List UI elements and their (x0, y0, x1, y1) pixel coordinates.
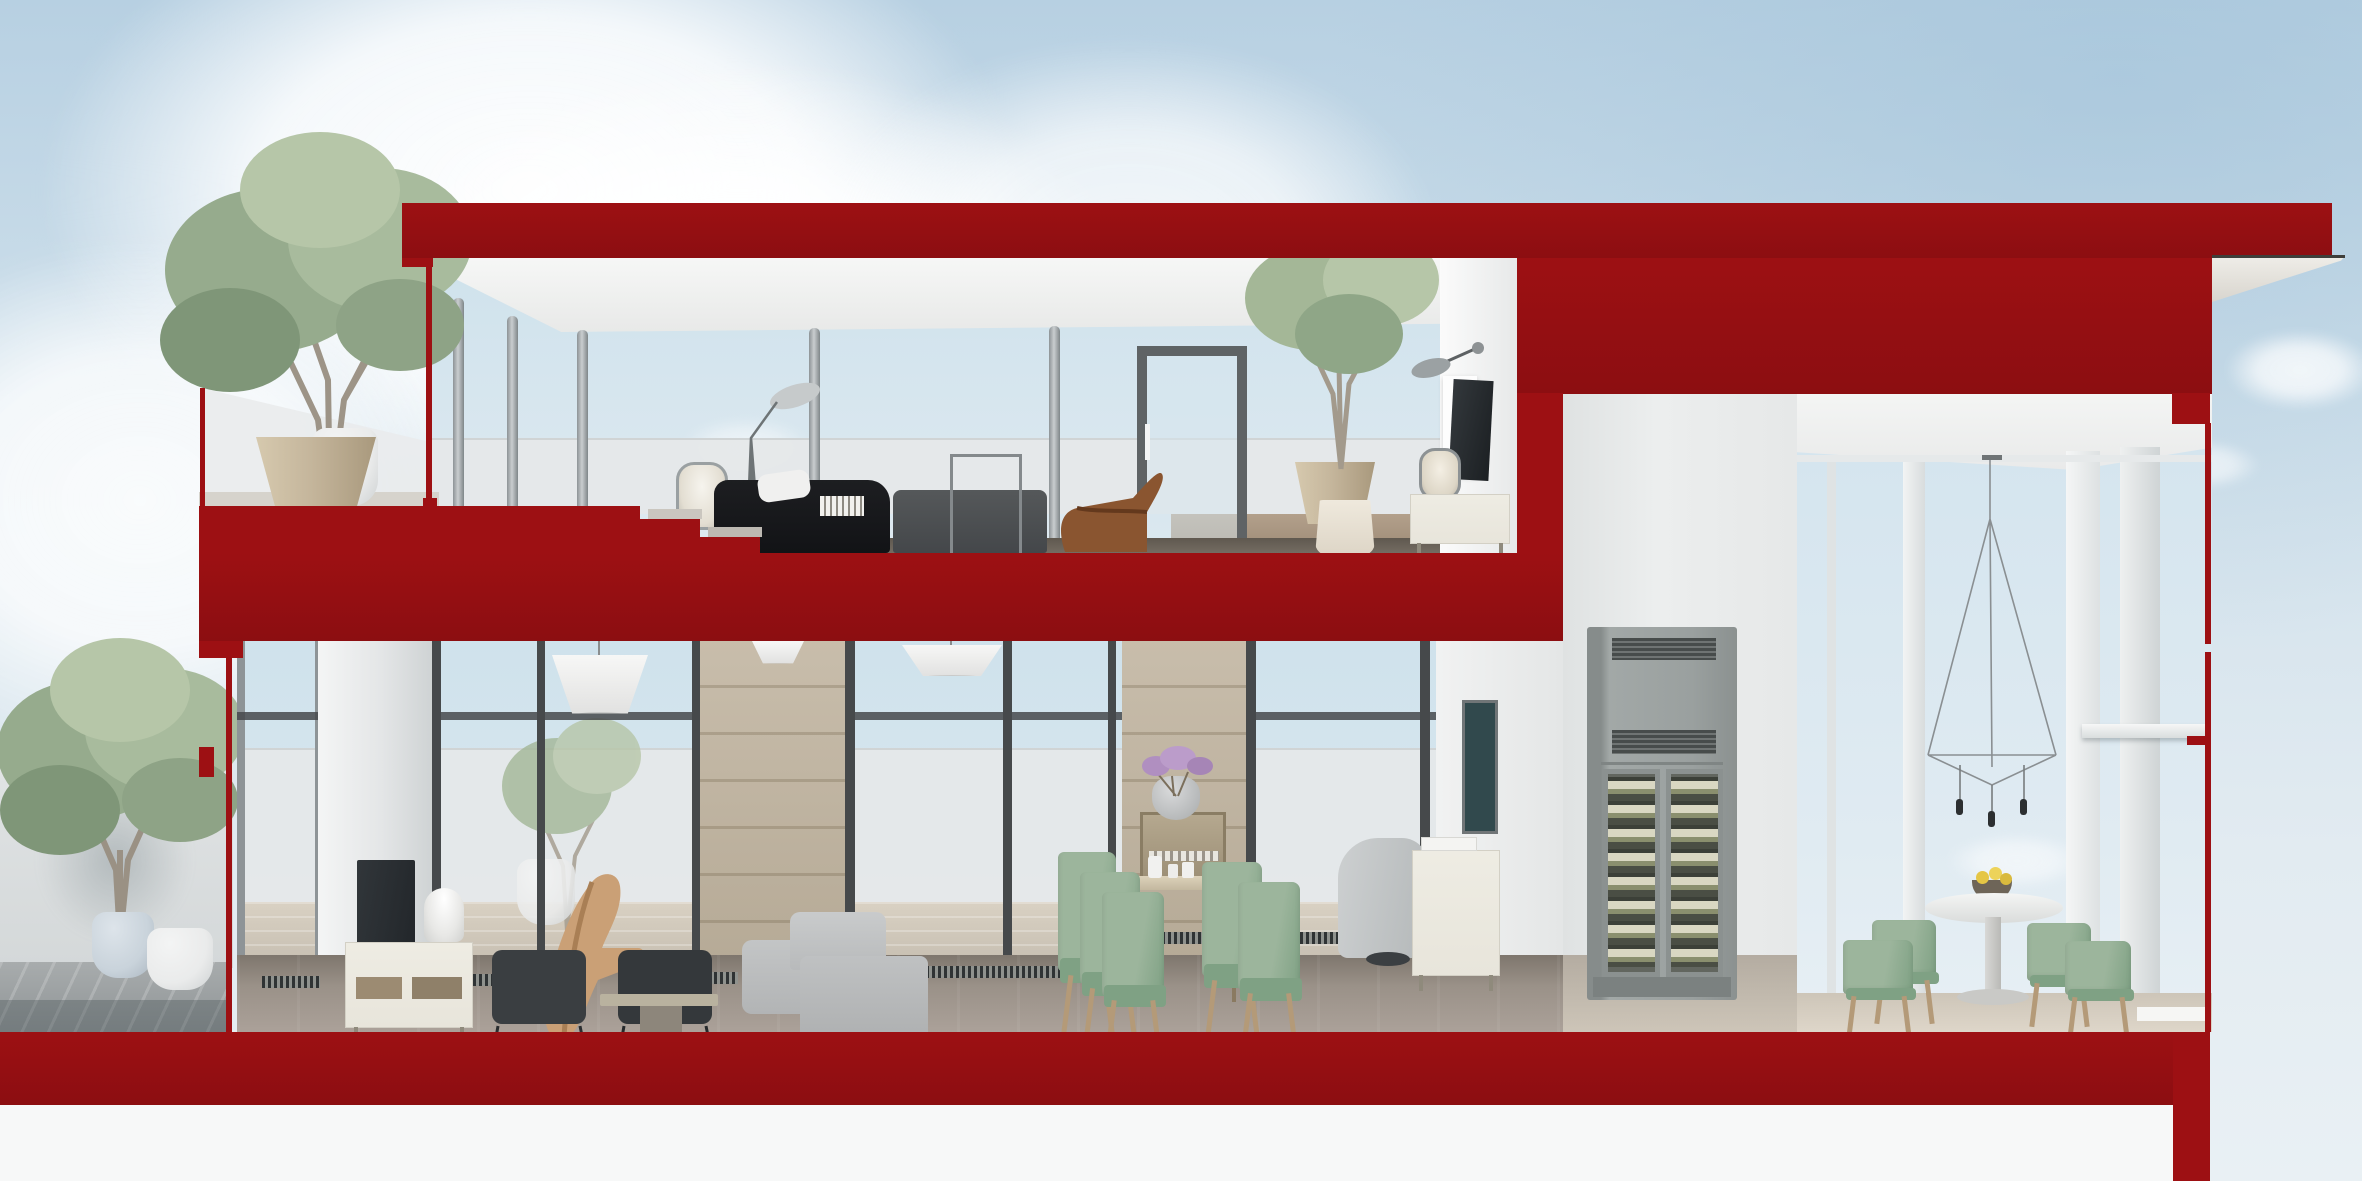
table-cup (1168, 864, 1178, 878)
upper-sideboard (1410, 494, 1510, 544)
leather-lounge-chair-icon (1055, 468, 1175, 554)
wine-door-left (1603, 769, 1660, 977)
wine-climate-cabinet (1587, 627, 1737, 1000)
corner-chair-sage (2065, 941, 2131, 1037)
tray-and-books (1421, 837, 1477, 851)
intermediate-slab-cut (199, 553, 1563, 641)
right-glass-room (1797, 393, 2212, 1032)
table-jug (1148, 856, 1162, 878)
ground-slab-right-column (2173, 1032, 2210, 1181)
sideboard-leg (1489, 975, 1493, 991)
slab-left-step (199, 641, 243, 658)
right-glazing-cut-line-2 (2205, 652, 2211, 1032)
wireframe-pendant-icon (1890, 455, 2090, 835)
sideboard-leg (1419, 975, 1423, 991)
table-pedestal (1985, 917, 2001, 993)
section-render-stage (0, 0, 2362, 1181)
roof-terrace (160, 120, 480, 560)
book-stack (820, 496, 864, 516)
tote-bag (1315, 500, 1375, 556)
step-tread (708, 527, 762, 537)
right-edge-cut-block (2172, 393, 2210, 424)
sunlit-sill (2137, 1007, 2207, 1021)
cabinet-vent-lower (1612, 730, 1716, 754)
bottom-white-margin (0, 1105, 2173, 1181)
glazing-cut-line-lower (226, 641, 232, 1032)
right-wall-mass-cut (1517, 258, 2212, 394)
wine-bottles (1608, 777, 1655, 967)
wine-door-right (1666, 769, 1723, 977)
cabinet-plinth (1593, 977, 1731, 997)
wine-bottles (1671, 777, 1718, 967)
ground-slab-cut (0, 1032, 2210, 1105)
white-mullion-thin (1827, 455, 1836, 1025)
pendant-cord (598, 641, 600, 657)
swivel-chair-base (1366, 952, 1410, 966)
lantern-lamp-on-sideboard (1419, 448, 1461, 500)
metal-side-frame (950, 454, 1022, 553)
door-rail-cut-nub (199, 747, 214, 777)
table-cup (1182, 862, 1194, 878)
fruit (2000, 873, 2012, 885)
right-glazing-cut-line (2205, 423, 2211, 644)
slab-step-cut-2 (700, 537, 760, 553)
fruit (1976, 871, 1989, 884)
step-tread (648, 509, 702, 519)
terrace-clay-pot (256, 437, 376, 507)
terrace-slab-cut (199, 506, 640, 553)
roof-slab-cut (402, 203, 2332, 258)
corner-chair-sage (1843, 940, 1913, 1036)
slab-step-cut-1 (640, 519, 700, 553)
cabinet-wall-zone (1563, 393, 1797, 1032)
cabinet-vent-upper (1612, 638, 1716, 660)
dining-sideboard (1412, 850, 1500, 976)
balustrade-cut-line (200, 388, 205, 506)
cabinet-divider (1601, 762, 1723, 765)
handrail-cut-nub (2187, 736, 2205, 745)
table-base (1957, 989, 2029, 1005)
door-handle (1145, 424, 1150, 460)
purple-flowers-icon (1134, 742, 1220, 798)
roof-edge-line (2212, 255, 2345, 258)
